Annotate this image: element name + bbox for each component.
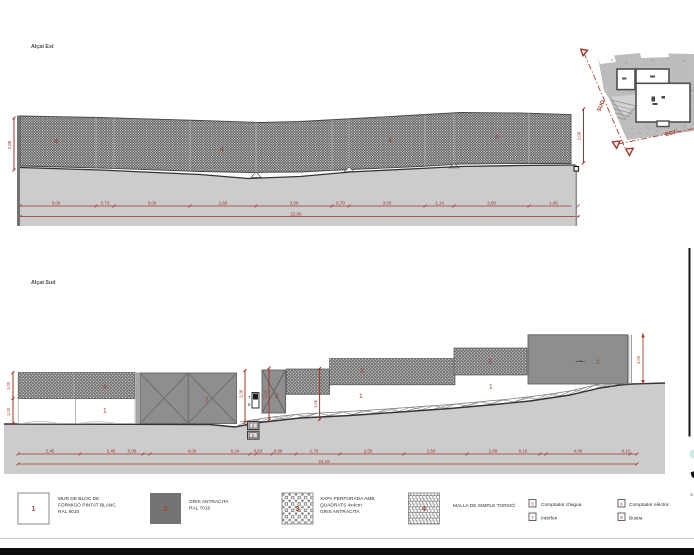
svg-text:Alçat Sud: Alçat Sud	[31, 280, 55, 286]
svg-text:22,06: 22,06	[290, 212, 302, 217]
svg-text:2: 2	[275, 393, 279, 400]
svg-text:4: 4	[495, 134, 499, 141]
svg-text:XAPA PERFORADA AMB: XAPA PERFORADA AMB	[320, 496, 375, 502]
svg-text:2,50: 2,50	[364, 449, 373, 454]
svg-text:1,45: 1,45	[549, 201, 558, 206]
svg-text:0,24: 0,24	[231, 449, 240, 454]
svg-text:3: 3	[488, 359, 492, 366]
svg-text:0,10: 0,10	[622, 449, 631, 454]
svg-text:3,00: 3,00	[52, 201, 61, 206]
svg-text:2: 2	[596, 359, 600, 366]
svg-text:2,00: 2,00	[636, 355, 641, 364]
svg-text:3,00: 3,00	[383, 201, 392, 206]
svg-text:0,70: 0,70	[336, 201, 345, 206]
svg-text:3: 3	[360, 368, 364, 375]
svg-text:0,06: 0,06	[128, 449, 137, 454]
svg-text:2: 2	[205, 397, 209, 404]
svg-text:0,98: 0,98	[274, 449, 283, 454]
svg-text:2,08: 2,08	[7, 140, 12, 149]
svg-text:4: 4	[388, 138, 392, 145]
svg-text:1,14: 1,14	[435, 201, 444, 206]
svg-text:FORMIGÓ PINTAT BLANC: FORMIGÓ PINTAT BLANC	[58, 502, 116, 509]
svg-text:GRIS ANTRACITA: GRIS ANTRACITA	[189, 499, 229, 505]
svg-text:1,70: 1,70	[310, 449, 319, 454]
svg-text:2,45: 2,45	[107, 449, 116, 454]
svg-text:Intèrfon: Intèrfon	[541, 516, 558, 522]
svg-text:1,00: 1,00	[6, 381, 11, 390]
svg-text:1,06: 1,06	[313, 399, 318, 408]
svg-text:2,45: 2,45	[46, 449, 55, 454]
svg-text:Comptador d'aigua: Comptador d'aigua	[541, 502, 582, 508]
svg-text:2,08: 2,08	[577, 131, 582, 140]
svg-text:Comptador elèctric: Comptador elèctric	[629, 502, 670, 508]
svg-text:4: 4	[220, 147, 224, 154]
svg-text:Bustia: Bustia	[629, 516, 643, 522]
svg-text:MALLA DE SIMPLE TORSIÓ: MALLA DE SIMPLE TORSIÓ	[453, 502, 515, 509]
svg-text:3,00: 3,00	[148, 201, 157, 206]
svg-text:RAL 7016: RAL 7016	[189, 506, 210, 512]
svg-text:0,10: 0,10	[519, 449, 528, 454]
svg-text:24,19: 24,19	[318, 459, 330, 464]
svg-text:GRIS ANTRACITA: GRIS ANTRACITA	[320, 509, 360, 515]
svg-text:3: 3	[295, 504, 299, 513]
svg-text:4: 4	[54, 139, 58, 146]
svg-text:1,00: 1,00	[6, 407, 11, 416]
svg-text:1: 1	[359, 393, 363, 400]
svg-text:2,08: 2,08	[239, 389, 244, 398]
svg-text:2,20: 2,20	[263, 389, 268, 398]
svg-text:2,66: 2,66	[219, 201, 228, 206]
svg-text:S: S	[690, 492, 693, 497]
svg-text:QUADRATS 4x4cm: QUADRATS 4x4cm	[320, 503, 362, 509]
svg-text:1: 1	[489, 384, 493, 391]
svg-text:2,50: 2,50	[427, 449, 436, 454]
svg-text:3,00: 3,00	[487, 201, 496, 206]
svg-text:0,73: 0,73	[101, 201, 110, 206]
svg-text:2,89: 2,89	[489, 449, 498, 454]
svg-text:4,00: 4,00	[574, 449, 583, 454]
svg-text:MUR DE BLOC DE: MUR DE BLOC DE	[58, 496, 99, 502]
svg-text:1: 1	[103, 408, 107, 415]
svg-text:3: 3	[103, 384, 107, 391]
svg-text:4,00: 4,00	[188, 449, 197, 454]
svg-text:3,00: 3,00	[290, 201, 299, 206]
svg-text:2: 2	[163, 504, 167, 513]
svg-text:RAL 9010: RAL 9010	[58, 509, 79, 515]
svg-text:Alçat Est: Alçat Est	[31, 44, 54, 50]
svg-text:1: 1	[31, 504, 35, 513]
svg-text:0,63: 0,63	[254, 449, 263, 454]
